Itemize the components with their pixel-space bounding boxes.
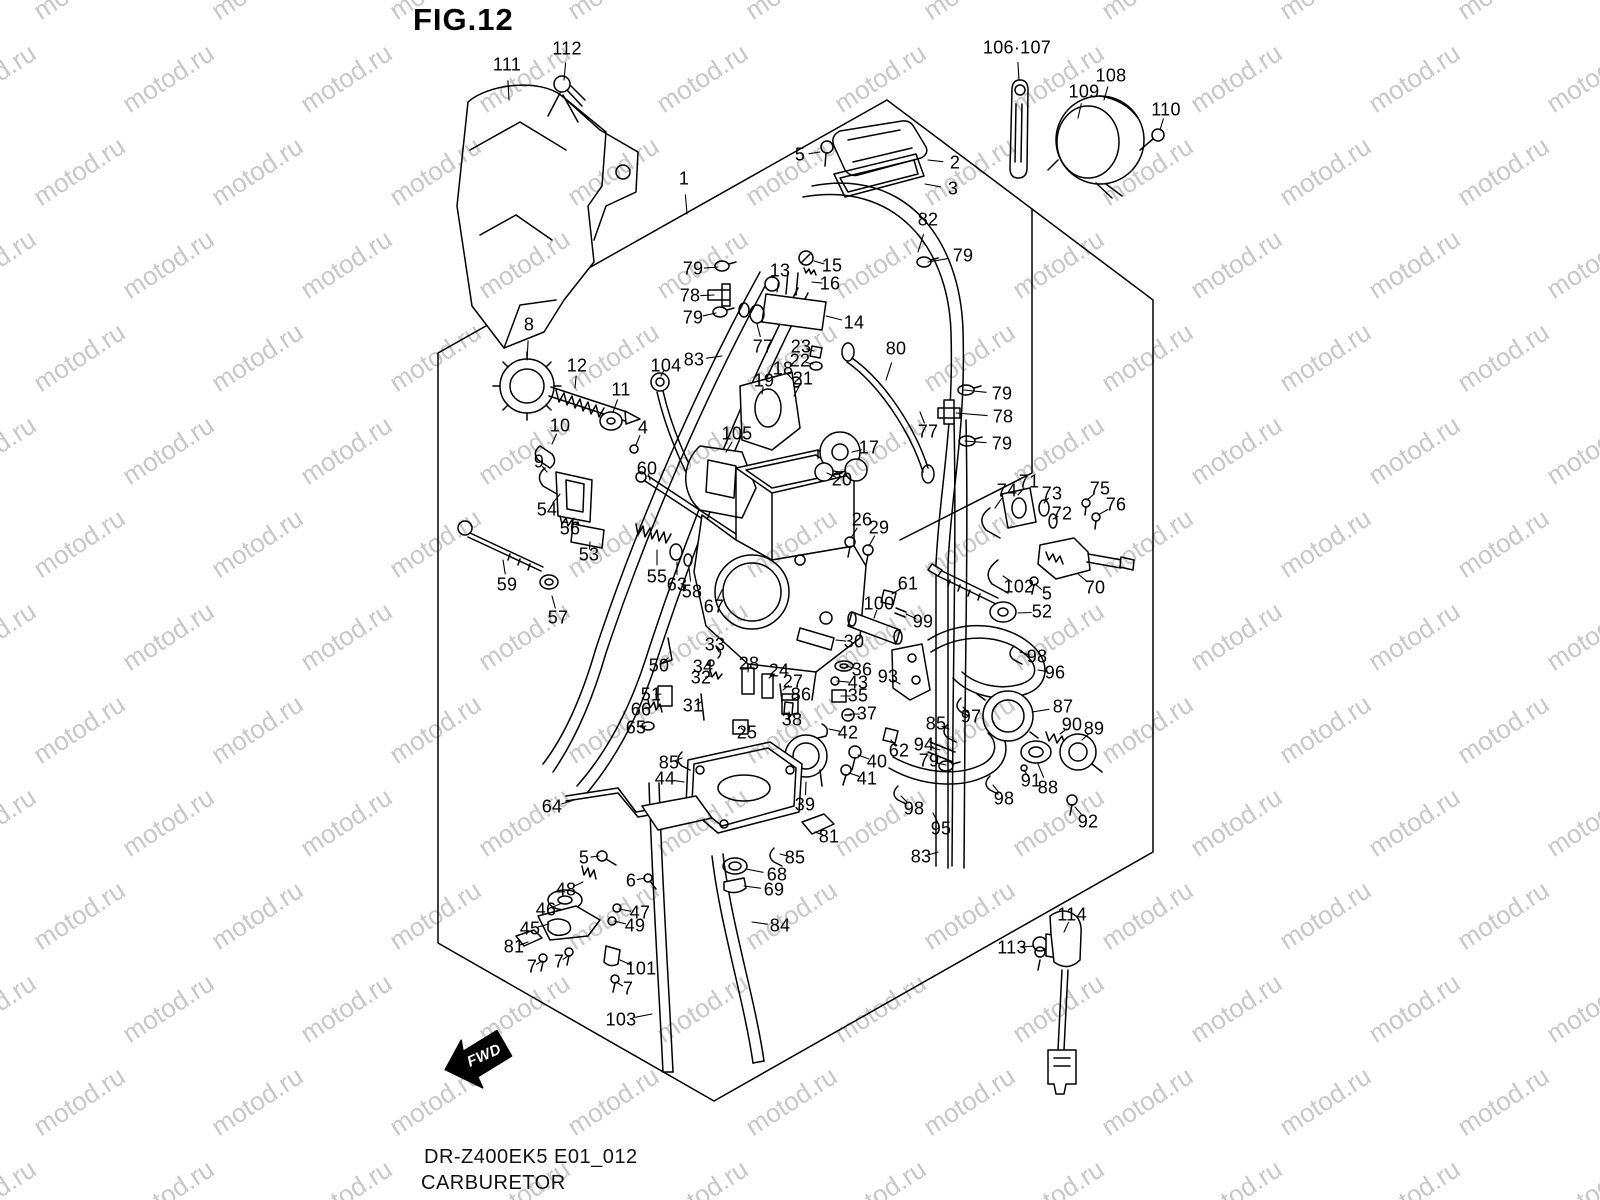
part-59-screw — [458, 521, 558, 589]
leader-line-41 — [849, 773, 859, 776]
leader-line-84 — [752, 922, 767, 924]
leader-line-8 — [527, 341, 528, 360]
leader-line-85 — [780, 854, 788, 856]
leader-line-48 — [574, 882, 583, 886]
leader-line-16 — [812, 282, 822, 283]
leader-line-113 — [1022, 946, 1034, 947]
leader-line-70 — [1078, 574, 1087, 582]
leader-line-80 — [886, 363, 892, 380]
parts-87-92-valve — [977, 691, 1102, 815]
part-106-107-bracket — [1010, 80, 1028, 178]
leader-line-7 — [563, 956, 568, 959]
leader-line-77 — [920, 412, 924, 423]
leader-line-78 — [701, 295, 714, 296]
leader-line-42 — [829, 729, 840, 731]
leader-line-2 — [928, 160, 943, 162]
leader-line-3 — [925, 184, 940, 187]
leader-line-106·107 — [1018, 62, 1019, 80]
leader-line-15 — [814, 261, 824, 264]
leader-line-5 — [809, 152, 820, 154]
leader-line-7 — [537, 961, 543, 964]
part-19-plate — [740, 372, 800, 450]
part-52-cable-end — [928, 564, 1016, 622]
leader-line-11 — [613, 400, 617, 412]
leader-line-1 — [685, 195, 687, 214]
leader-line-99 — [906, 614, 915, 618]
leader-line-31 — [697, 702, 701, 704]
part-108-109-clamp — [1048, 96, 1144, 198]
leader-line-59 — [503, 560, 505, 574]
leader-line-7 — [616, 982, 623, 986]
leader-line-88 — [1038, 764, 1044, 777]
leader-line-4 — [636, 436, 640, 445]
footer-model-code: DR-Z400EK5 E01_012 — [424, 1146, 638, 1169]
leader-line-14 — [826, 316, 841, 320]
leader-line-5 — [1035, 584, 1042, 590]
leader-line-53 — [590, 542, 591, 549]
parts-diagram-page: FWD FIG.12 112111106·1071081091105231827… — [0, 0, 1600, 1200]
part-102-hook — [988, 560, 1038, 594]
leader-line-68 — [746, 869, 763, 872]
parts-55-63-58 — [636, 524, 692, 566]
part-114-sensor — [1048, 911, 1081, 1094]
leader-line-92 — [1075, 807, 1082, 815]
part-2-cover — [833, 121, 927, 176]
parts-70-76-choke — [982, 488, 1134, 579]
leader-line-76 — [1098, 510, 1108, 516]
leader-line-77 — [757, 324, 760, 337]
footer-diagram-title: CARBURETOR — [421, 1172, 566, 1195]
leader-line-100 — [874, 610, 877, 618]
leader-line-90 — [1060, 729, 1067, 734]
leader-line-44 — [674, 780, 685, 782]
leader-line-79 — [964, 390, 986, 392]
part-111-cover — [457, 85, 638, 348]
leader-line-29 — [869, 536, 875, 546]
leader-line-103 — [635, 1014, 652, 1017]
leader-line-10 — [552, 434, 556, 444]
leader-line-32 — [706, 676, 712, 677]
leader-line-102 — [1003, 576, 1012, 582]
leader-line-60 — [648, 474, 650, 480]
part-5-screw-top — [821, 141, 833, 166]
part-105-bracket — [686, 446, 756, 518]
figure-title: FIG.12 — [413, 2, 514, 38]
part-64-rod — [566, 788, 712, 889]
leader-line-75 — [1087, 494, 1094, 500]
parts-53-54-56 — [556, 472, 604, 548]
leader-line-87 — [1032, 709, 1049, 712]
leader-line-12 — [575, 376, 576, 388]
leader-line-101 — [620, 960, 632, 965]
part-14-fuel-joint — [739, 251, 826, 330]
leader-line-57 — [552, 596, 555, 608]
leader-line-74 — [995, 499, 1002, 508]
leader-line-81 — [815, 832, 823, 835]
parts-45-49-pump — [516, 814, 834, 992]
leader-line-39 — [806, 782, 807, 795]
leader-line-83 — [707, 356, 722, 358]
leader-line-28 — [748, 668, 749, 672]
leader-line-110 — [1160, 119, 1163, 130]
leader-line-58 — [689, 568, 691, 581]
fwd-indicator: FWD — [438, 1026, 519, 1098]
exploded-diagram-artwork: FWD — [0, 0, 1600, 1200]
leader-line-51 — [656, 694, 662, 695]
leader-line-52 — [1018, 613, 1031, 614]
leader-line-96 — [1038, 670, 1047, 672]
leader-line-27 — [783, 686, 789, 690]
